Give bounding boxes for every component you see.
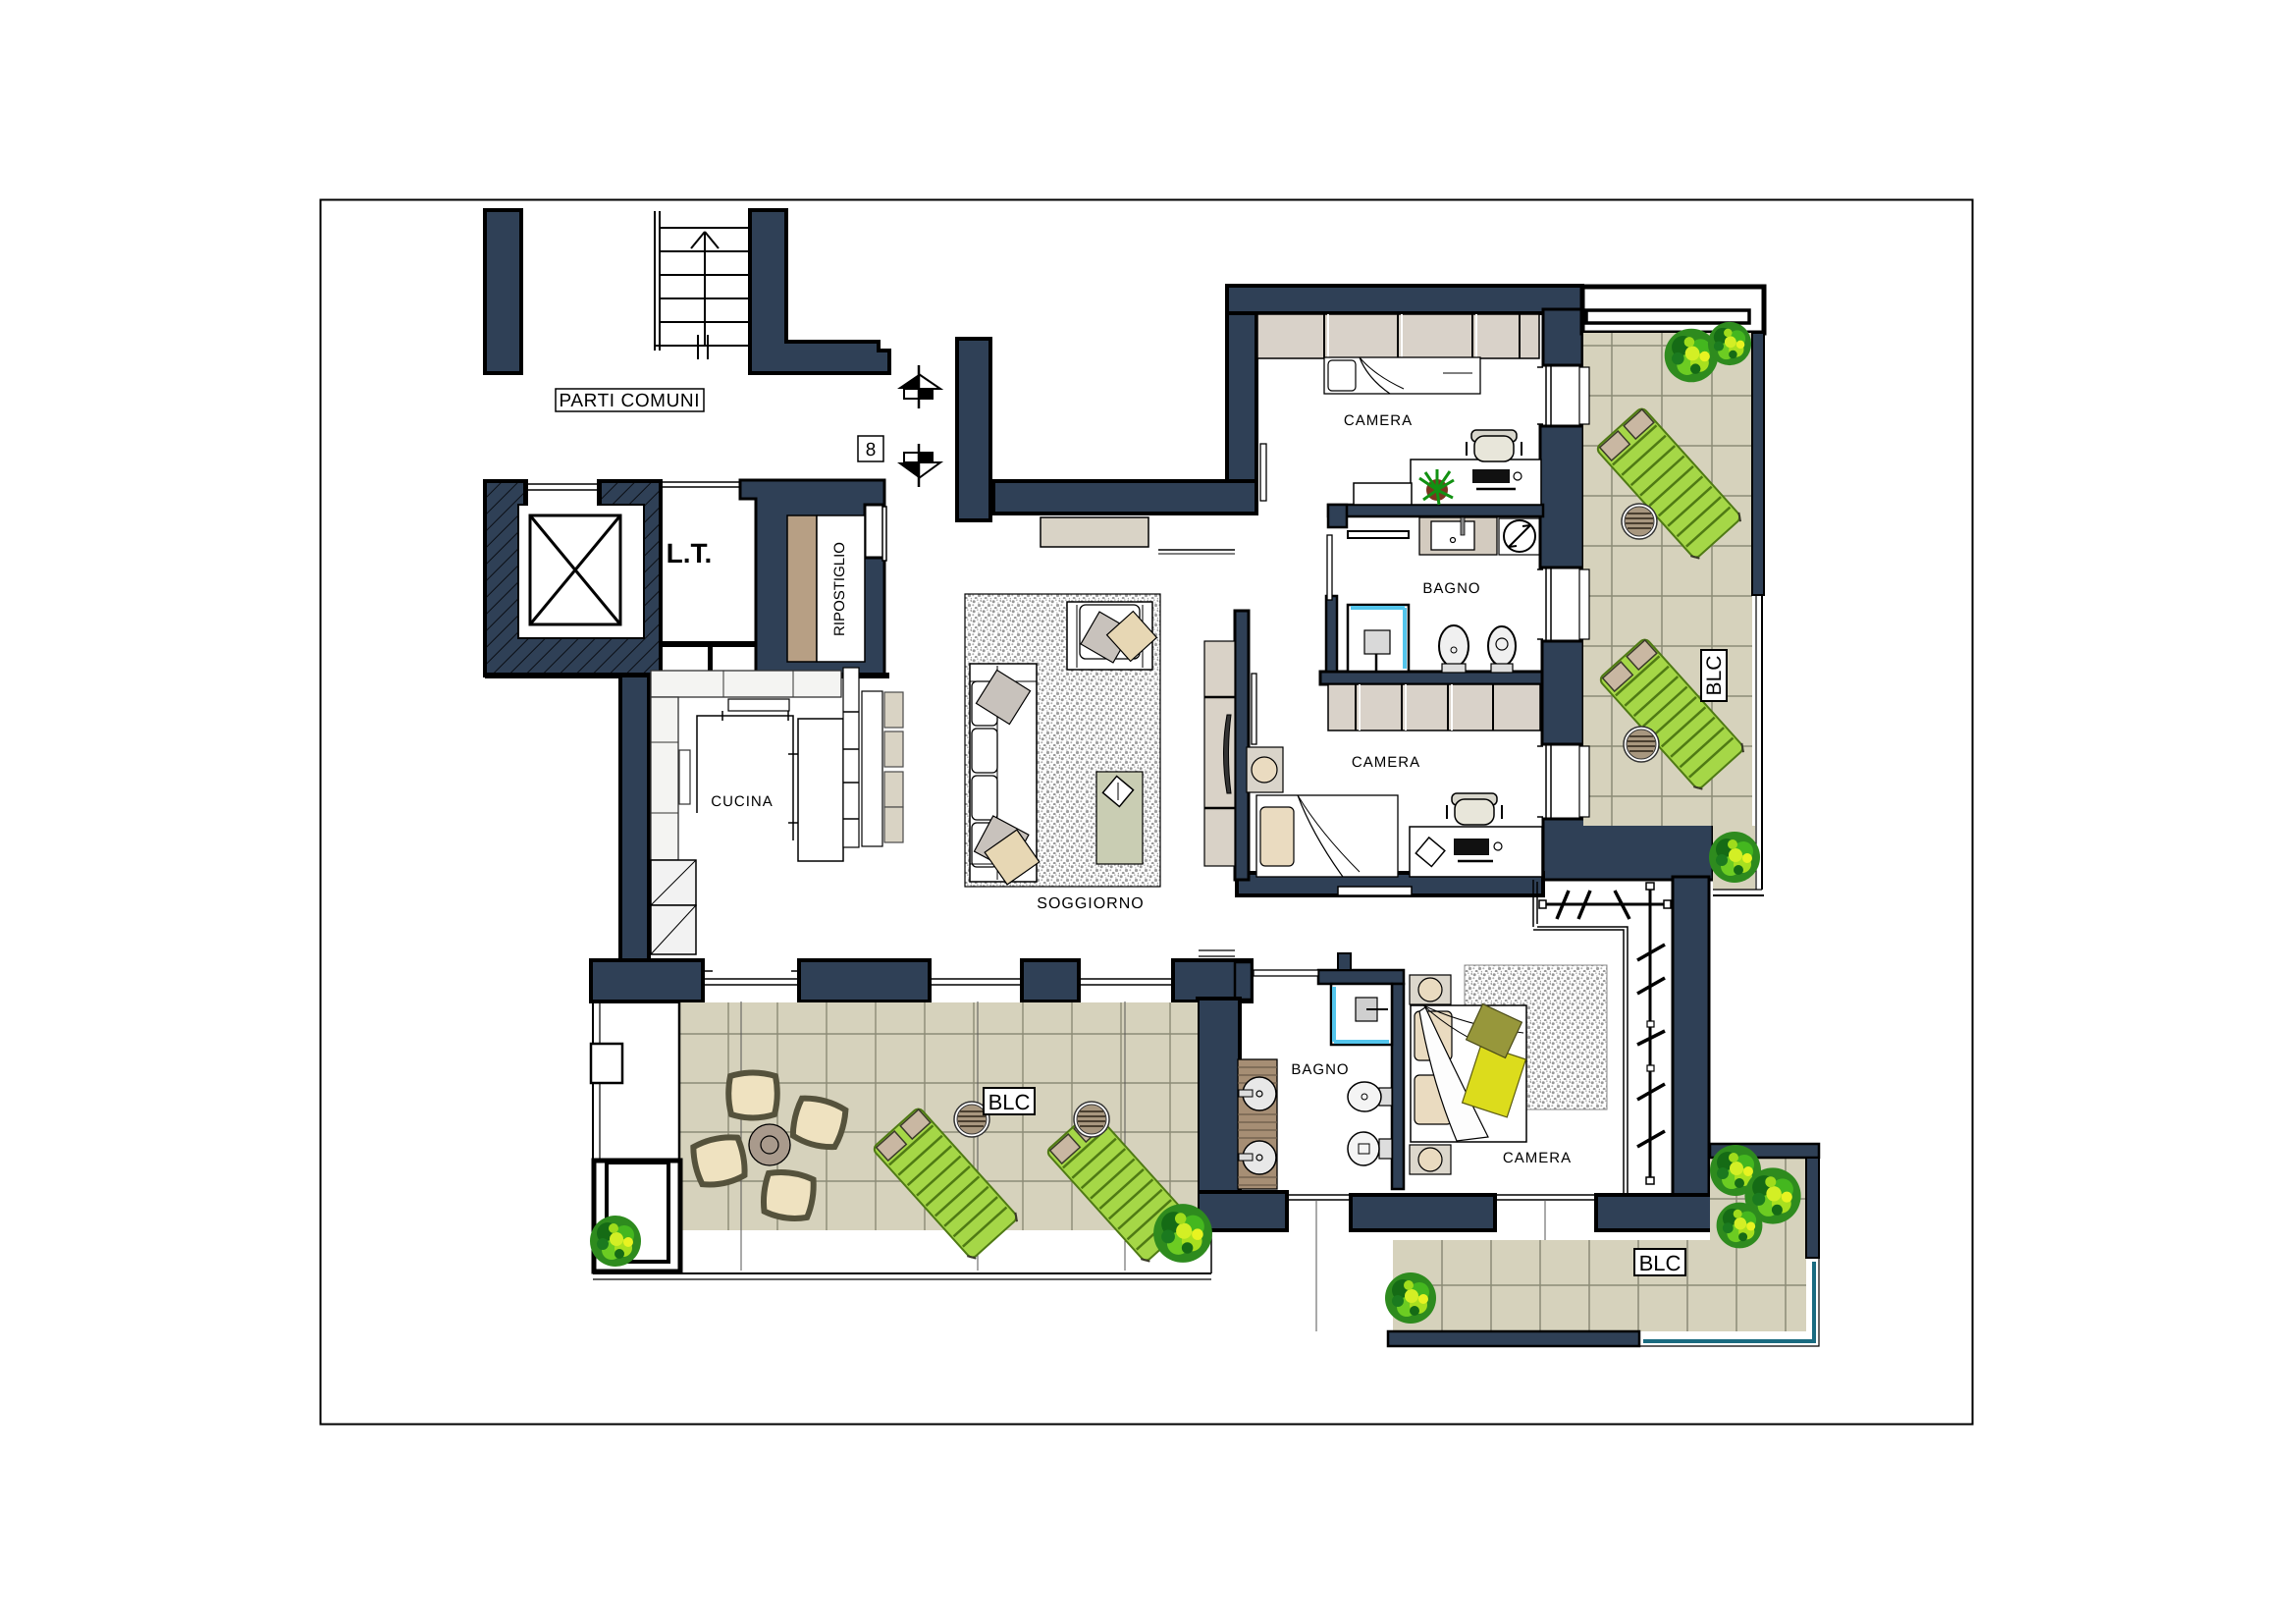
svg-text:PARTI COMUNI: PARTI COMUNI [560, 391, 700, 411]
svg-text:RIPOSTIGLIO: RIPOSTIGLIO [831, 542, 848, 636]
svg-text:8: 8 [866, 440, 877, 460]
svg-text:CAMERA: CAMERA [1344, 412, 1413, 429]
svg-text:CUCINA: CUCINA [711, 793, 774, 810]
svg-text:CAMERA: CAMERA [1503, 1150, 1572, 1166]
svg-text:BLC: BLC [988, 1090, 1031, 1114]
svg-text:BAGNO: BAGNO [1291, 1061, 1349, 1078]
svg-text:BAGNO: BAGNO [1422, 580, 1480, 597]
svg-text:BLC: BLC [1703, 656, 1726, 696]
svg-text:L.T.: L.T. [667, 538, 713, 568]
svg-text:BLC: BLC [1639, 1251, 1682, 1275]
svg-text:CAMERA: CAMERA [1352, 754, 1420, 771]
svg-text:SOGGIORNO: SOGGIORNO [1037, 895, 1144, 912]
